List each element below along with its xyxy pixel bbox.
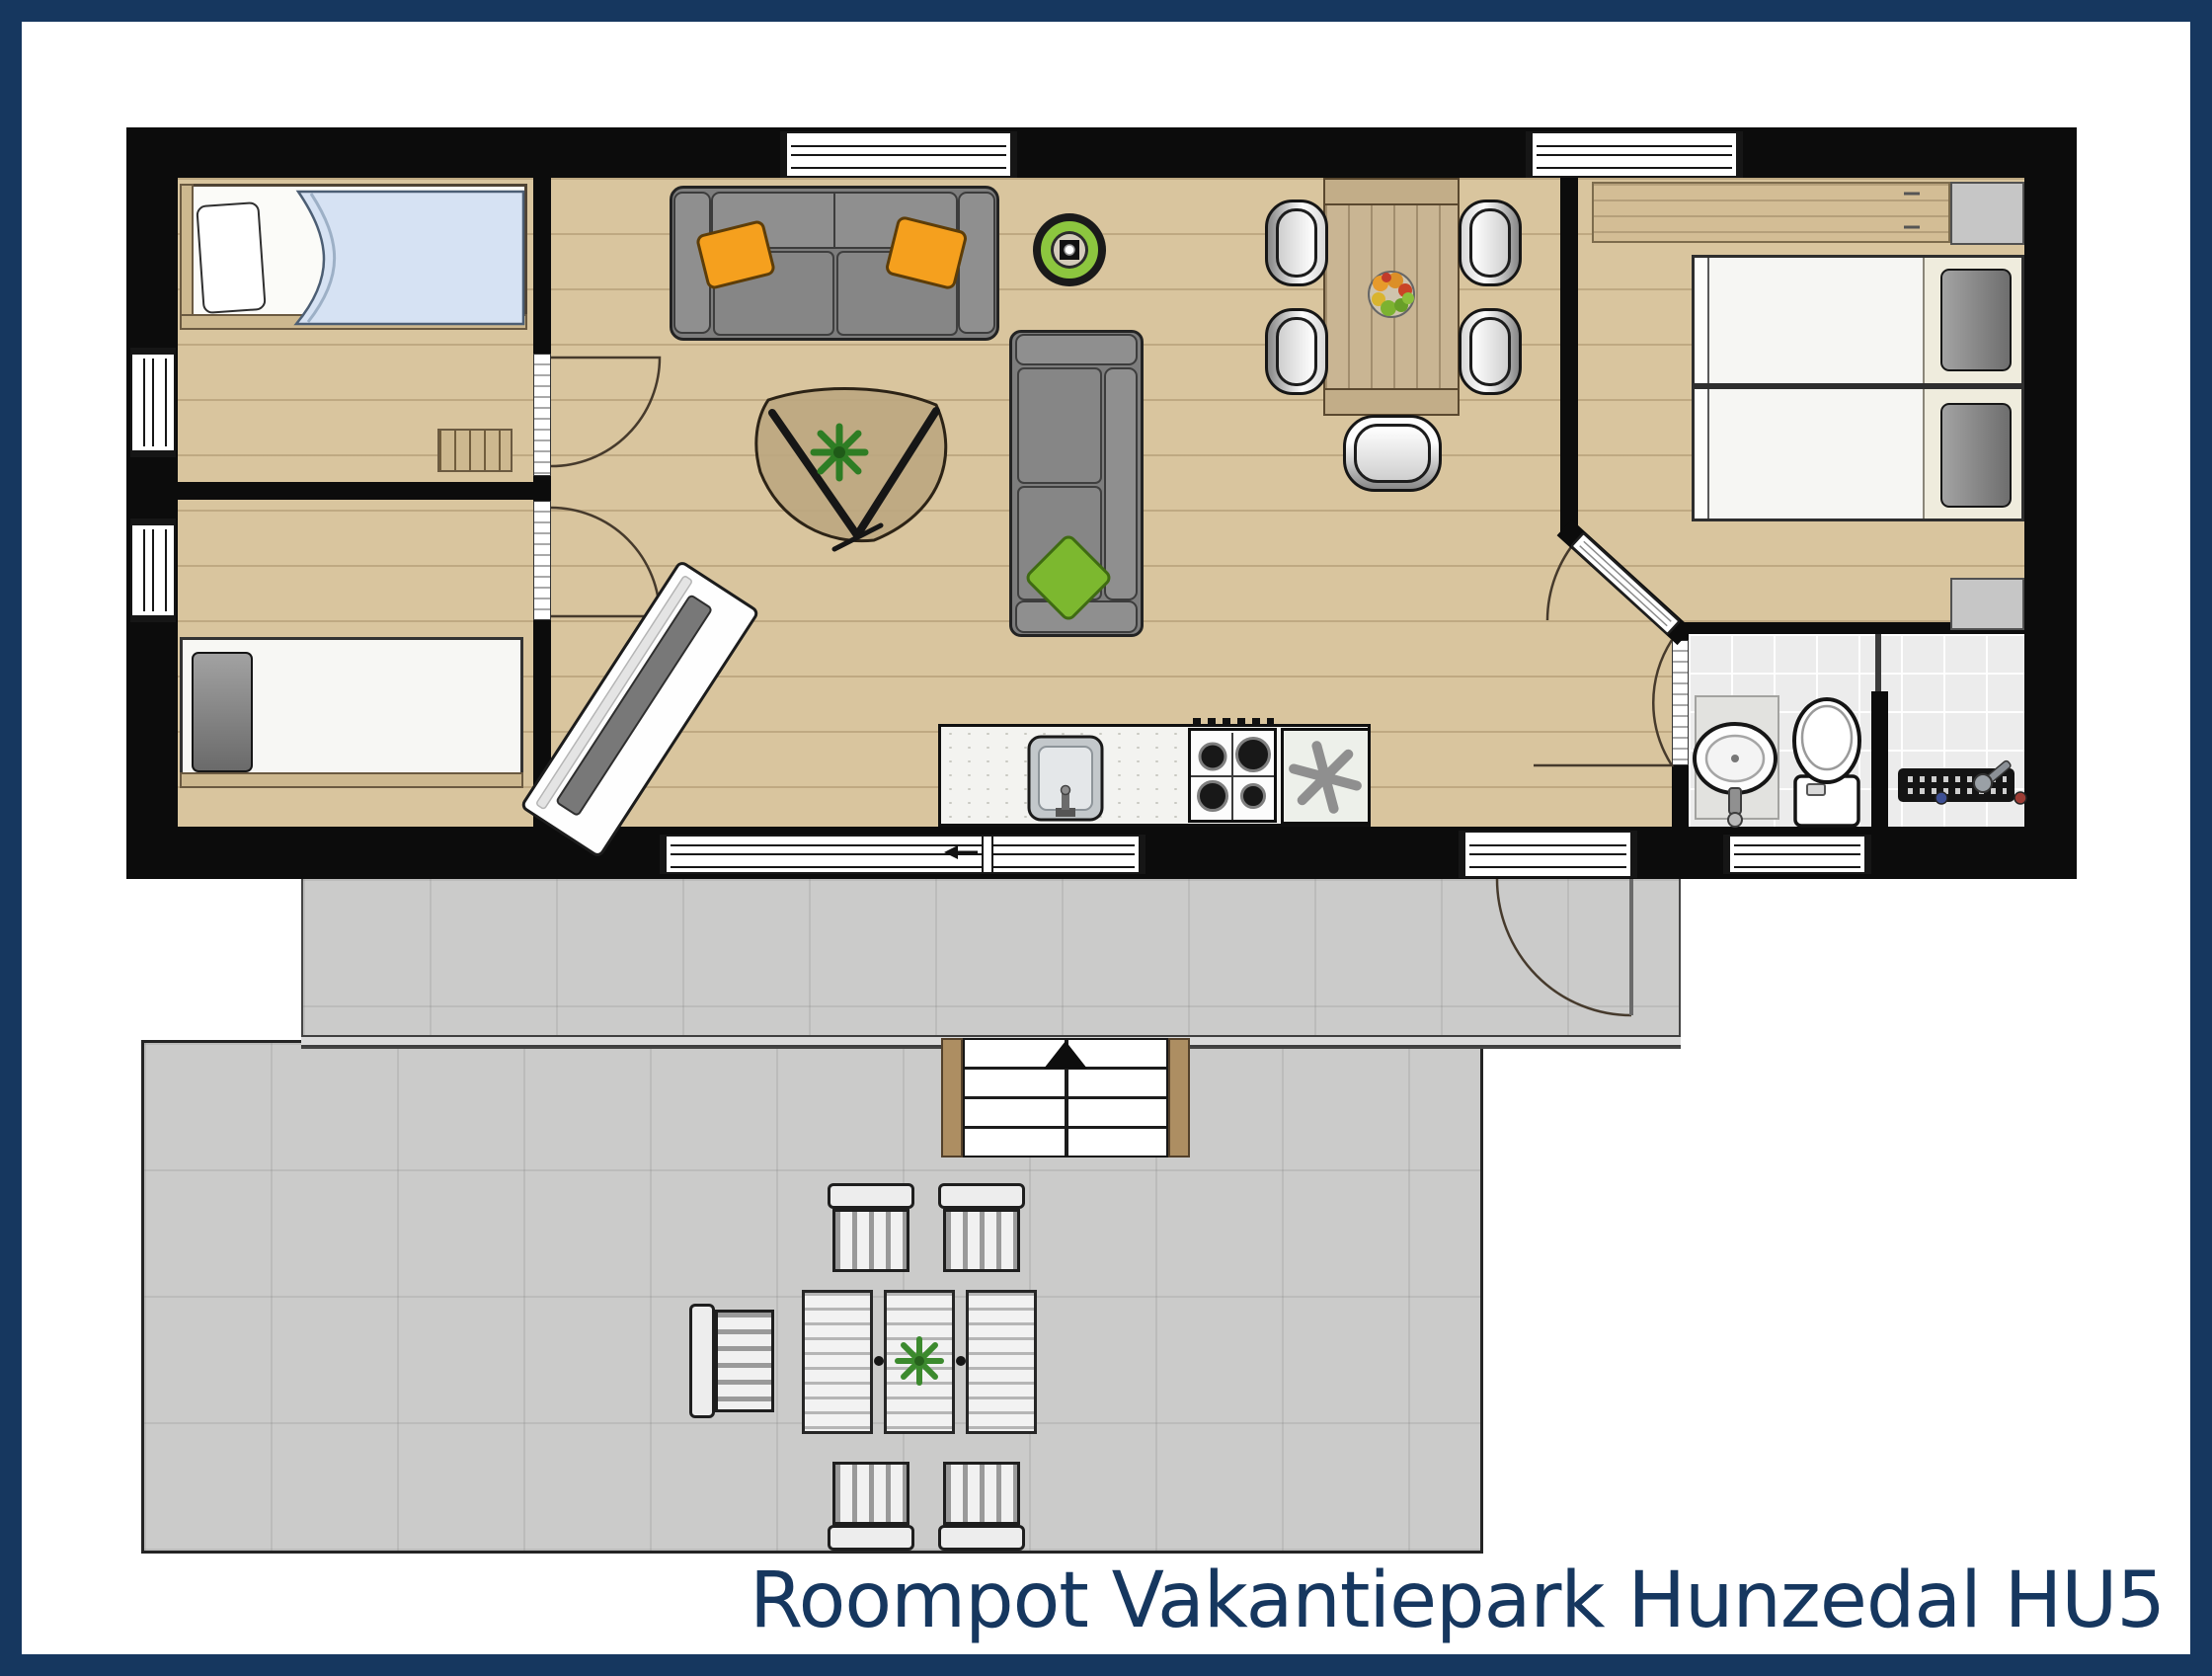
dining-chair [1459,200,1522,286]
garden-chair [943,1209,1020,1272]
shower-glass-line [1875,634,1881,691]
window-bottom-long [660,835,1145,874]
garden-chair-back [828,1183,914,1209]
wall-bedrooms-living-c [533,620,551,827]
step-bench [437,429,513,472]
dining-chair [1265,200,1328,286]
wardrobe-top [1950,182,2024,245]
bed-2-pillow [192,652,253,772]
bed-1-headboard [180,184,194,330]
chaise-arm-bottom [1015,600,1138,633]
wall-shower-divider [1871,691,1888,879]
doorframe-bedroom2 [533,501,551,620]
garden-side-chair-back [689,1304,715,1418]
garden-side-chair [715,1310,774,1412]
window-top-bedroom [1526,131,1743,178]
stove [1188,728,1277,823]
dining-table [1323,178,1460,416]
wall-living-bedroomright [1560,178,1578,538]
sofa-arm-left [673,192,711,334]
freezer [1281,728,1371,825]
window-bathroom [1723,835,1871,874]
window-left-bedroom1 [130,348,176,457]
garden-table-panel [884,1290,955,1434]
garden-chair [832,1209,909,1272]
sofa-seat-left [713,251,834,336]
bed-1-foot-rail [180,314,527,330]
garden-chair-back [938,1183,1025,1209]
basin-cabinet [1695,695,1779,820]
window-mullion [982,835,993,874]
wall-bathroom-left-a [1672,622,1689,640]
garden-chair [832,1462,909,1525]
garden-table-panel [966,1290,1037,1434]
stairs-rail-left [941,1038,963,1157]
chaise-arm-top [1015,334,1138,365]
garden-chair [943,1462,1020,1525]
doorframe-bedroom1 [533,354,551,476]
sofa-back-cushions [711,192,958,249]
stairs-rail-right [1168,1038,1190,1157]
chaise-seat-bottom [1017,486,1102,600]
garden-chair-back [938,1525,1025,1551]
dining-high-chair [1343,415,1442,492]
bed-2-foot-rail [180,772,523,788]
doorframe-bathroom [1672,640,1689,765]
front-door-glazing [1459,831,1637,878]
window-top-living [780,131,1017,178]
chaise-back [1104,367,1138,600]
dining-chair [1265,308,1328,395]
stairs [963,1038,1168,1157]
plan-title: Roompot Vakantiepark Hunzedal HU5 [750,1562,2165,1639]
garden-chair-back [828,1525,914,1551]
stove-knobs [1193,718,1274,726]
wardrobe-bottom [1950,578,2024,630]
wall-bedrooms-living-a [533,178,551,354]
wall-between-left-bedrooms [126,482,551,500]
twin-bed-b-pillow [1940,403,2012,508]
floorplan-canvas: Roompot Vakantiepark Hunzedal HU5 [0,0,2212,1676]
wall-bathroom-left-b [1672,765,1689,879]
twin-bed-a-pillow [1940,269,2012,371]
garden-table-panel [802,1290,873,1434]
sofa-seat-right [836,251,958,336]
dining-chair [1459,308,1522,395]
desk-shelf [1592,182,1950,243]
sofa-arm-right [958,192,995,334]
upper-terrace [301,877,1681,1049]
bed-1-pillow [196,201,267,314]
window-left-bedroom2 [130,519,176,622]
chaise-seat-top [1017,367,1102,484]
